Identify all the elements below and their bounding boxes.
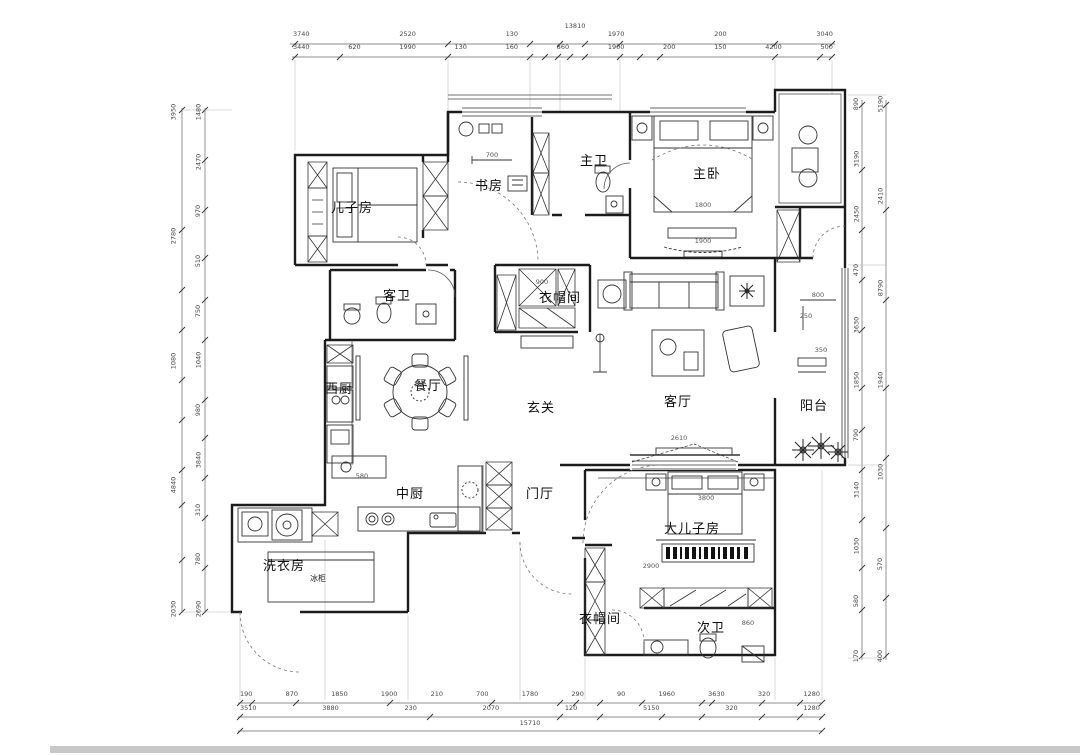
label-guest-bath: 客卫 <box>383 288 411 304</box>
wardrobe-cabinets <box>308 133 800 655</box>
label-entry-hall: 玄关 <box>527 401 555 416</box>
inner-dim: 350 <box>815 346 827 354</box>
label-foyer: 门厅 <box>526 487 554 502</box>
label-living: 客厅 <box>664 394 692 410</box>
floor-plan-drawing: 儿子房 书房 主卫 主卧 客卫 衣帽间 西厨 餐厅 玄关 客厅 阳台 中厨 门厅… <box>0 0 1080 755</box>
label-elder-sons-room: 大儿子房 <box>664 521 720 537</box>
inner-dim: 2900 <box>643 562 660 570</box>
furniture-second-bath <box>644 634 764 662</box>
walls <box>232 90 845 655</box>
balcony-plants <box>739 283 848 462</box>
label-second-bath: 次卫 <box>697 620 725 636</box>
label-freezer: 冰柜 <box>310 573 326 583</box>
furniture-dining <box>356 354 468 430</box>
furniture-west-kitchen <box>327 366 353 463</box>
dimension-ticks <box>179 41 889 734</box>
label-cloakroom-upper: 衣帽间 <box>539 290 581 306</box>
inner-dim: 900 <box>536 278 548 286</box>
furniture-entry <box>521 336 573 348</box>
label-master-bath: 主卫 <box>580 154 608 169</box>
dimension-lines <box>182 44 886 731</box>
inner-dim: 250 <box>800 312 812 320</box>
label-cloakroom-lower: 衣帽间 <box>579 611 621 627</box>
inner-dim: 3800 <box>698 494 715 502</box>
sheet-border-band <box>50 746 1080 753</box>
floor-plan-sheet: 儿子房 书房 主卫 主卧 客卫 衣帽间 西厨 餐厅 玄关 客厅 阳台 中厨 门厅… <box>0 0 1080 755</box>
inner-dim: 800 <box>812 291 824 299</box>
furniture-laundry <box>238 508 374 602</box>
label-dining: 餐厅 <box>414 378 442 394</box>
label-balcony: 阳台 <box>800 399 828 414</box>
inner-dim: 1800 <box>695 201 712 209</box>
inner-dim: 700 <box>486 151 498 159</box>
furniture-balcony <box>798 300 836 372</box>
label-chinese-kitchen: 中厨 <box>396 487 424 502</box>
inner-dim: 2610 <box>671 434 688 442</box>
furniture-master-bedroom <box>632 116 773 257</box>
door-leaves <box>428 163 630 297</box>
label-laundry: 洗衣房 <box>263 558 305 574</box>
dim-bottom-total: 15710 <box>240 719 820 727</box>
label-study: 书房 <box>475 178 503 194</box>
dim-top-total: 13810 <box>545 22 605 30</box>
inner-dim: 860 <box>742 619 754 627</box>
room-labels: 儿子房 书房 主卫 主卧 客卫 衣帽间 西厨 餐厅 玄关 客厅 阳台 中厨 门厅… <box>263 154 828 636</box>
label-sons-room: 儿子房 <box>331 200 373 216</box>
label-west-kitchen: 西厨 <box>325 382 353 397</box>
extension-lines <box>182 60 886 700</box>
inner-dim: 1900 <box>695 237 712 245</box>
piano-keys <box>666 547 748 559</box>
label-master-bedroom: 主卧 <box>693 167 721 182</box>
inner-dim: 580 <box>356 472 368 480</box>
